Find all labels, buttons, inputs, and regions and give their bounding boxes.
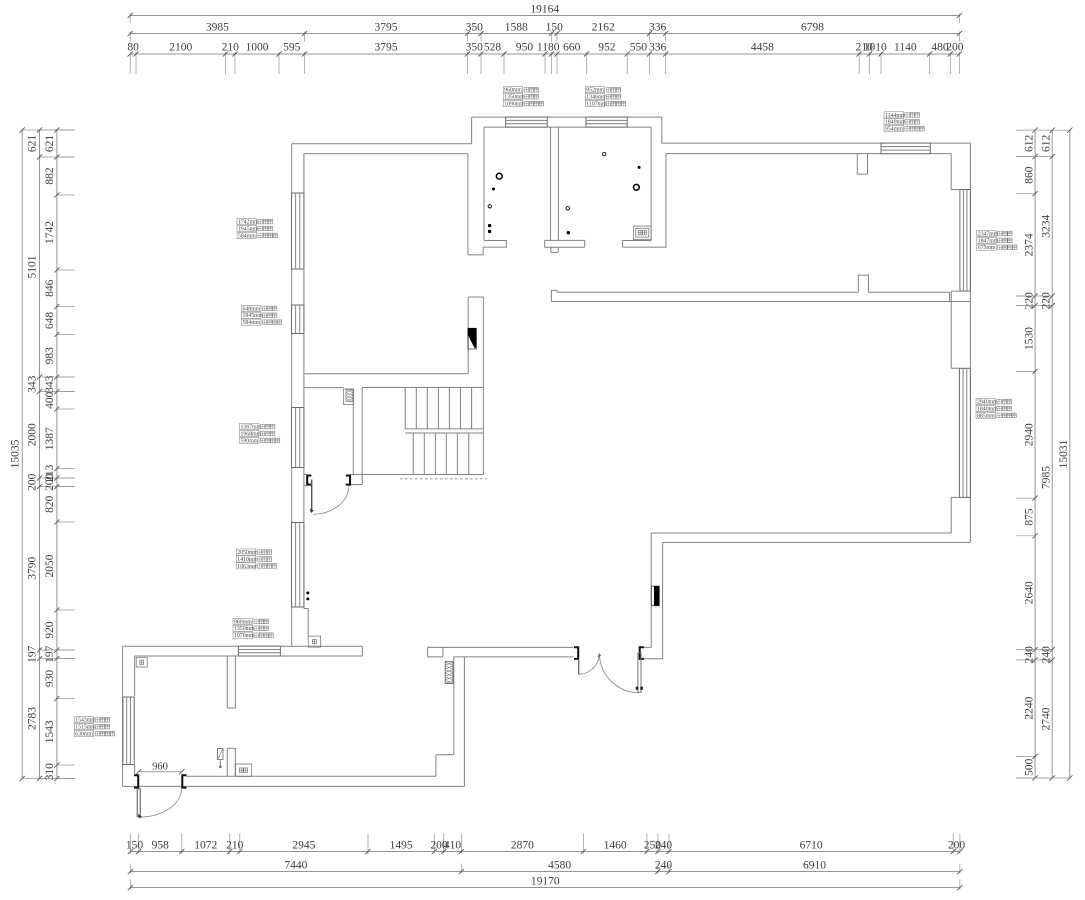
svg-text:3985: 3985 — [206, 22, 229, 34]
svg-text:310: 310 — [44, 763, 56, 781]
svg-text:952mm: 952mm — [586, 88, 604, 94]
svg-text:197: 197 — [27, 645, 39, 663]
svg-text:983: 983 — [44, 347, 56, 365]
svg-text:1063mm: 1063mm — [237, 564, 258, 570]
svg-text:612: 612 — [1040, 135, 1052, 153]
svg-text:2870: 2870 — [511, 840, 534, 852]
svg-text:1000: 1000 — [246, 42, 269, 54]
svg-text:648: 648 — [44, 312, 56, 330]
svg-text:528: 528 — [484, 42, 502, 54]
svg-text:200: 200 — [44, 473, 56, 491]
svg-text:960mm: 960mm — [504, 88, 522, 94]
svg-text:3795: 3795 — [375, 22, 398, 34]
svg-text:630mm: 630mm — [75, 732, 93, 738]
svg-text:2050: 2050 — [44, 554, 56, 577]
svg-text:200: 200 — [27, 473, 39, 491]
svg-text:550: 550 — [630, 42, 648, 54]
svg-text:1180: 1180 — [537, 42, 560, 54]
svg-text:336: 336 — [649, 22, 667, 34]
svg-text:584mm: 584mm — [238, 233, 256, 239]
svg-text:1515mm: 1515mm — [75, 725, 96, 731]
svg-text:675mm: 675mm — [978, 245, 996, 251]
svg-text:500: 500 — [1024, 758, 1036, 776]
svg-text:660: 660 — [563, 42, 581, 54]
svg-text:1840mm: 1840mm — [977, 406, 998, 412]
svg-text:648mm: 648mm — [243, 306, 261, 312]
svg-text:1072: 1072 — [194, 840, 217, 852]
svg-text:1849mm: 1849mm — [885, 120, 906, 126]
svg-text:350: 350 — [466, 22, 484, 34]
svg-text:950: 950 — [516, 42, 534, 54]
svg-text:960: 960 — [152, 761, 168, 772]
svg-text:3790: 3790 — [27, 557, 39, 580]
svg-text:2162: 2162 — [592, 22, 615, 34]
svg-text:220: 220 — [1040, 292, 1052, 310]
svg-text:1460: 1460 — [604, 840, 627, 852]
svg-text:2240: 2240 — [1024, 696, 1036, 719]
svg-text:590mm: 590mm — [241, 438, 259, 444]
svg-text:80: 80 — [127, 42, 139, 54]
svg-text:6910: 6910 — [803, 860, 826, 872]
svg-text:6710: 6710 — [800, 840, 823, 852]
svg-text:197: 197 — [44, 645, 56, 663]
svg-text:920: 920 — [44, 621, 56, 639]
svg-text:1945mm: 1945mm — [243, 313, 264, 319]
svg-text:240: 240 — [1040, 646, 1052, 664]
svg-text:820: 820 — [44, 495, 56, 513]
svg-text:621: 621 — [44, 135, 56, 153]
svg-text:885mm: 885mm — [977, 413, 995, 419]
svg-text:4458: 4458 — [751, 42, 774, 54]
svg-text:15035: 15035 — [9, 439, 21, 468]
svg-text:1387: 1387 — [44, 427, 56, 450]
svg-text:958: 958 — [152, 840, 170, 852]
svg-text:150: 150 — [126, 840, 144, 852]
svg-text:343: 343 — [44, 375, 56, 393]
svg-text:5101: 5101 — [27, 255, 39, 278]
svg-text:343: 343 — [27, 375, 39, 393]
svg-text:19164: 19164 — [530, 4, 559, 16]
svg-text:15031: 15031 — [1058, 439, 1070, 468]
svg-text:7440: 7440 — [284, 860, 307, 872]
svg-text:612: 612 — [1024, 135, 1036, 153]
svg-text:220: 220 — [1024, 292, 1036, 310]
svg-text:200: 200 — [946, 42, 964, 54]
svg-text:336: 336 — [649, 42, 667, 54]
svg-text:1350mm: 1350mm — [234, 626, 255, 632]
svg-text:2050mm: 2050mm — [237, 550, 258, 556]
svg-text:2945: 2945 — [292, 840, 315, 852]
svg-text:1543mm: 1543mm — [75, 718, 96, 724]
svg-text:860: 860 — [1024, 166, 1036, 184]
svg-text:1742mm: 1742mm — [238, 220, 259, 226]
svg-text:1742: 1742 — [44, 221, 56, 244]
svg-text:240: 240 — [655, 860, 673, 872]
svg-text:2640: 2640 — [1024, 581, 1036, 604]
svg-text:350: 350 — [466, 42, 484, 54]
svg-text:3234: 3234 — [1040, 215, 1052, 238]
svg-text:2347mm: 2347mm — [978, 231, 999, 237]
svg-text:19170: 19170 — [531, 876, 560, 888]
svg-text:846: 846 — [44, 279, 56, 297]
svg-text:1346mm: 1346mm — [586, 95, 607, 101]
svg-text:1847mm: 1847mm — [978, 238, 999, 244]
svg-text:1543: 1543 — [44, 720, 56, 743]
svg-text:875: 875 — [1024, 508, 1036, 526]
svg-text:1144mm: 1144mm — [885, 113, 906, 119]
svg-text:1968mm: 1968mm — [241, 431, 262, 437]
svg-text:4580: 4580 — [548, 860, 571, 872]
svg-text:3795: 3795 — [375, 42, 398, 54]
svg-text:2783: 2783 — [27, 707, 39, 730]
svg-text:1070mm: 1070mm — [234, 633, 255, 639]
svg-text:400: 400 — [44, 391, 56, 409]
svg-text:1090mm: 1090mm — [504, 102, 525, 108]
svg-text:2374: 2374 — [1024, 233, 1036, 256]
svg-text:882: 882 — [44, 167, 56, 185]
svg-text:930: 930 — [44, 670, 56, 688]
svg-text:1495: 1495 — [390, 840, 413, 852]
svg-text:960mm: 960mm — [234, 619, 252, 625]
svg-text:1140: 1140 — [894, 42, 917, 54]
svg-text:2940mm: 2940mm — [977, 400, 998, 406]
svg-text:952: 952 — [598, 42, 616, 54]
svg-text:1387mm: 1387mm — [241, 425, 262, 431]
svg-text:210: 210 — [226, 840, 244, 852]
svg-text:7985: 7985 — [1040, 466, 1052, 489]
svg-text:1410mm: 1410mm — [237, 557, 258, 563]
svg-text:2940: 2940 — [1024, 423, 1036, 446]
svg-text:1010: 1010 — [864, 42, 887, 54]
svg-text:1588: 1588 — [505, 22, 528, 34]
svg-text:1107mm: 1107mm — [586, 102, 607, 108]
svg-text:410: 410 — [444, 840, 462, 852]
svg-text:1350mm: 1350mm — [504, 95, 525, 101]
svg-text:621: 621 — [27, 135, 39, 153]
svg-text:150: 150 — [546, 22, 564, 34]
svg-text:1945mm: 1945mm — [238, 226, 259, 232]
svg-text:584mm: 584mm — [243, 320, 261, 326]
svg-text:2100: 2100 — [169, 42, 192, 54]
svg-text:2000: 2000 — [27, 423, 39, 446]
svg-text:240: 240 — [655, 840, 673, 852]
svg-text:6798: 6798 — [801, 22, 824, 34]
svg-text:954mm: 954mm — [885, 127, 903, 133]
svg-text:200: 200 — [948, 840, 966, 852]
svg-text:1530: 1530 — [1024, 327, 1036, 350]
svg-text:210: 210 — [222, 42, 240, 54]
svg-text:240: 240 — [1024, 646, 1036, 664]
svg-text:595: 595 — [283, 42, 301, 54]
svg-text:2740: 2740 — [1040, 707, 1052, 730]
